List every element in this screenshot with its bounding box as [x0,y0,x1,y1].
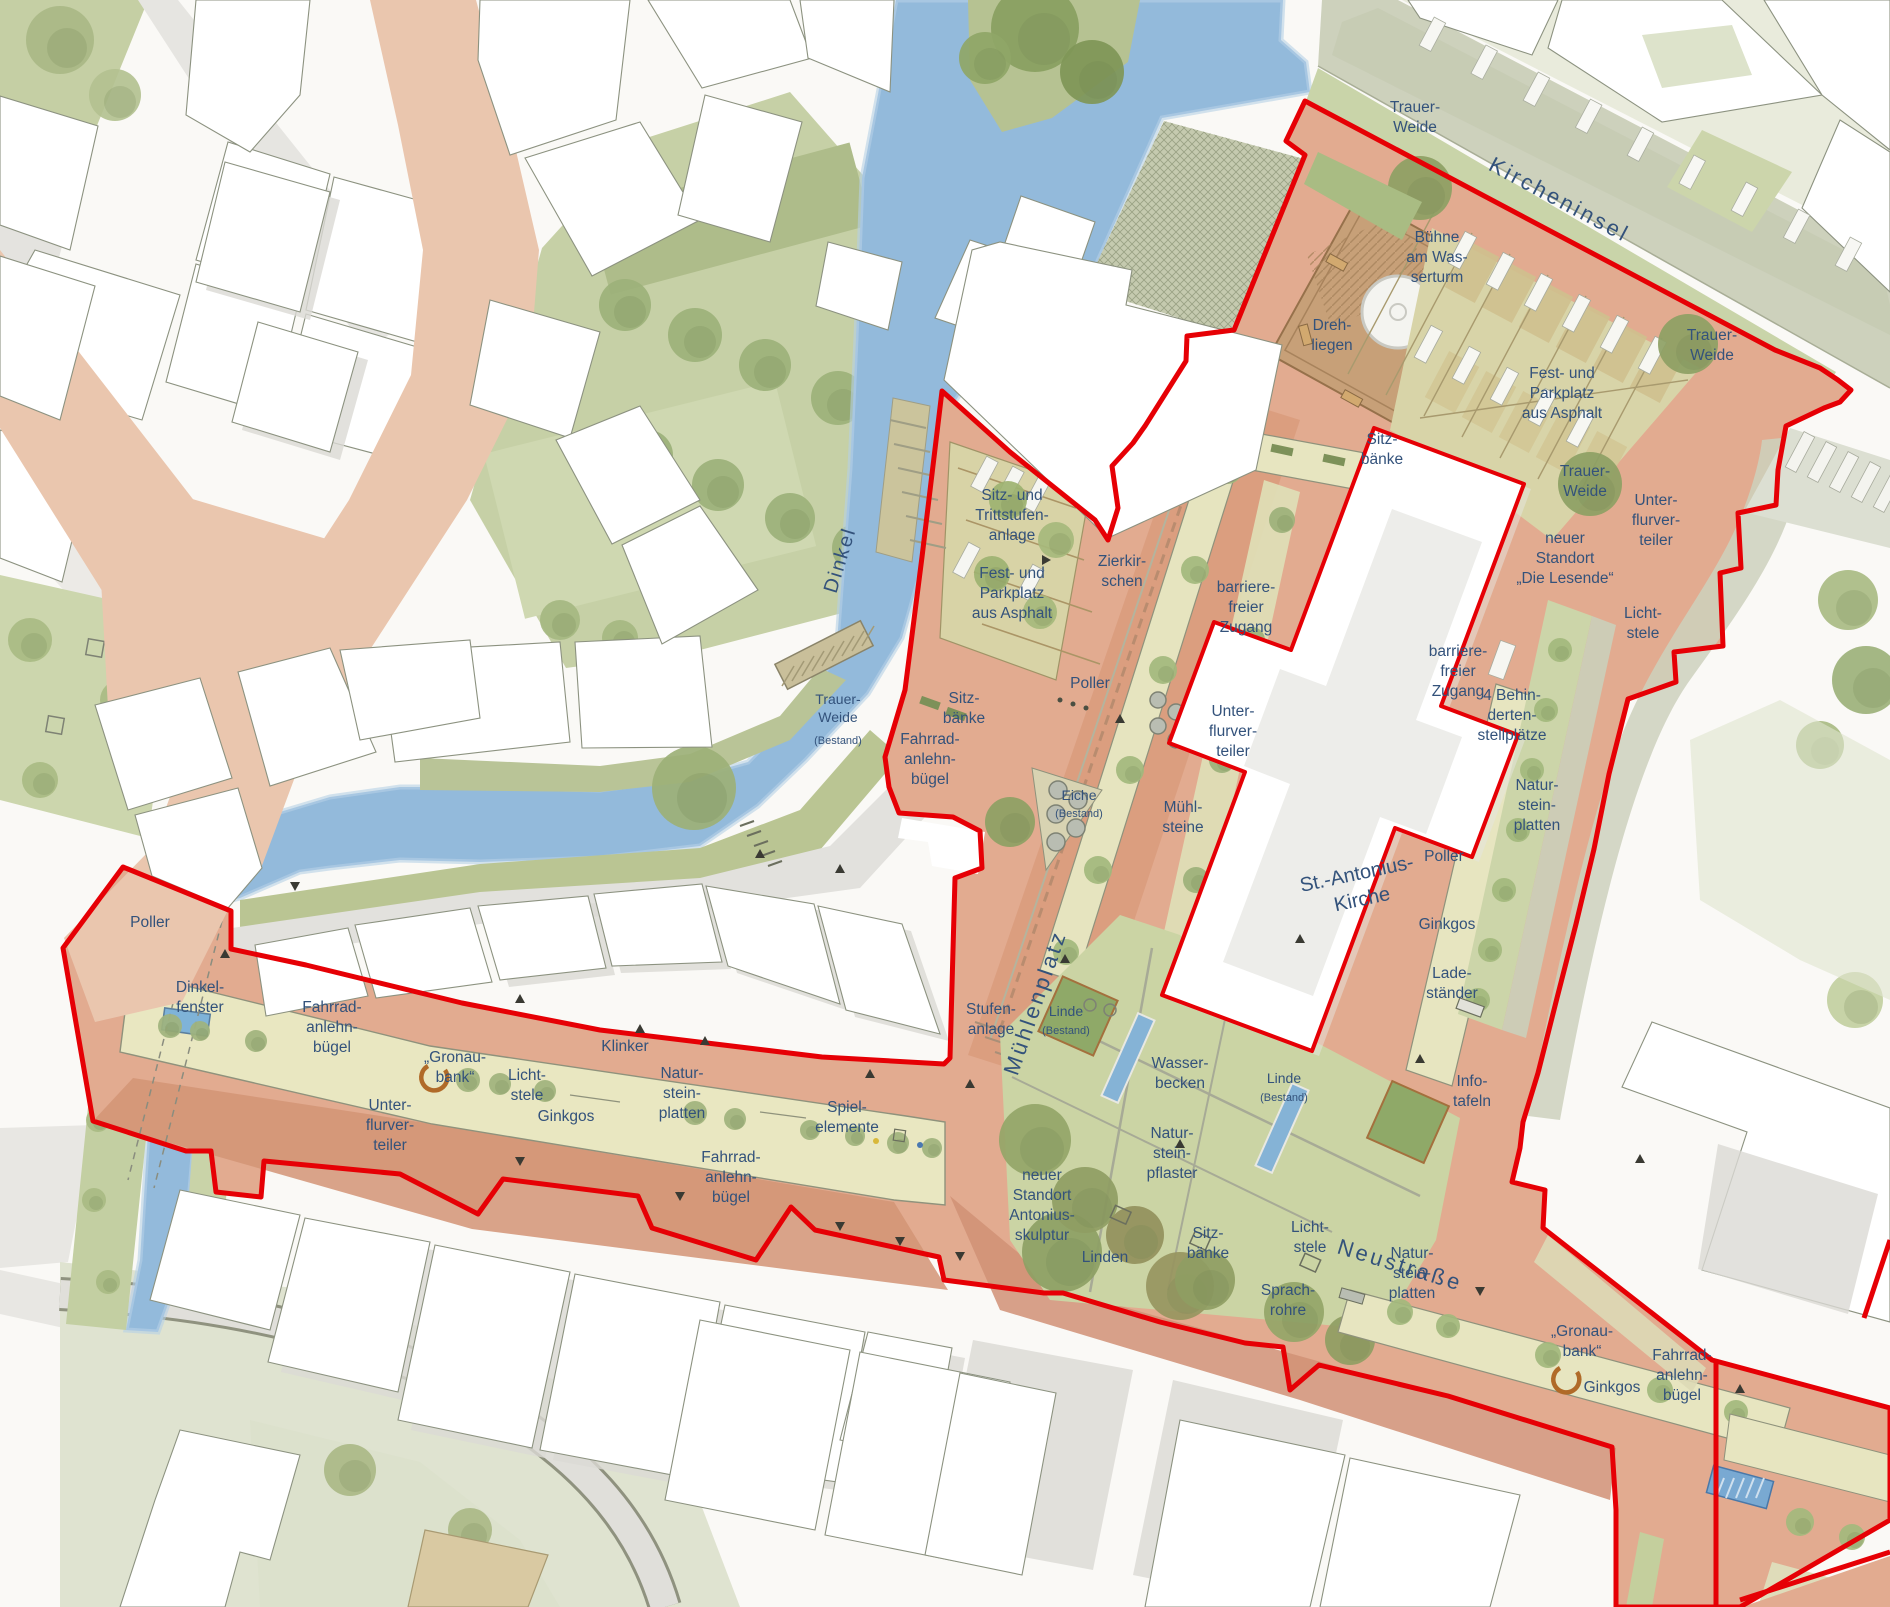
svg-text:Ginkgos: Ginkgos [538,1108,595,1125]
svg-text:Fest- undParkplatzaus Asphalt: Fest- undParkplatzaus Asphalt [1522,365,1603,422]
svg-text:Eiche: Eiche [1061,787,1096,803]
svg-text:Ginkgos: Ginkgos [1584,1379,1641,1396]
svg-text:Natur-stein-platten: Natur-stein-platten [659,1065,706,1122]
svg-text:Poller: Poller [1424,848,1464,865]
svg-text:Poller: Poller [130,914,170,931]
svg-text:Ginkgos: Ginkgos [1419,916,1476,933]
svg-text:Poller: Poller [1070,675,1110,692]
svg-text:Linde: Linde [1267,1070,1301,1086]
svg-text:Fest- undParkplatzaus Asphalt: Fest- undParkplatzaus Asphalt [972,565,1053,622]
svg-text:Natur-stein-platten: Natur-stein-platten [1514,777,1561,834]
svg-text:(Bestand): (Bestand) [814,735,862,747]
svg-text:Linden: Linden [1082,1249,1129,1266]
svg-text:Natur-stein-pflaster: Natur-stein-pflaster [1147,1125,1198,1182]
svg-text:Bühneam Was-serturm: Bühneam Was-serturm [1406,229,1467,286]
svg-text:(Bestand): (Bestand) [1260,1092,1308,1104]
svg-text:Klinker: Klinker [601,1038,648,1055]
svg-text:Linde: Linde [1049,1003,1083,1019]
svg-text:4 Behin-derten-stellplätze: 4 Behin-derten-stellplätze [1478,687,1547,744]
svg-text:(Bestand): (Bestand) [1055,808,1103,820]
svg-text:(Bestand): (Bestand) [1042,1025,1090,1037]
